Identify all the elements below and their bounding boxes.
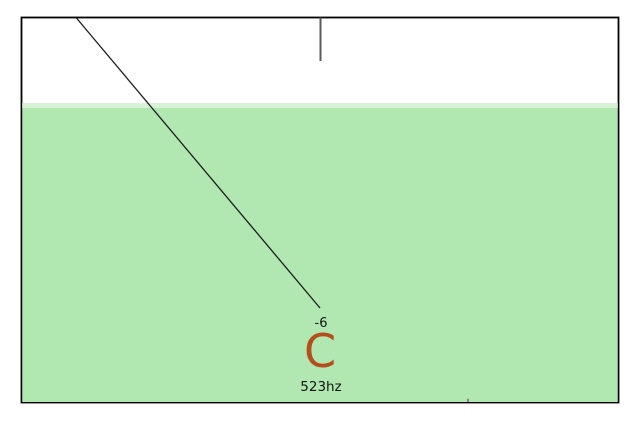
note-label: C — [304, 324, 336, 378]
meter-zone-fill-highlight — [22, 103, 617, 108]
tuner-app-window: -6 C 523hz — [0, 0, 641, 423]
frequency-label: 523hz — [300, 379, 341, 395]
tuner-meter-canvas: -6 C 523hz — [0, 0, 641, 423]
